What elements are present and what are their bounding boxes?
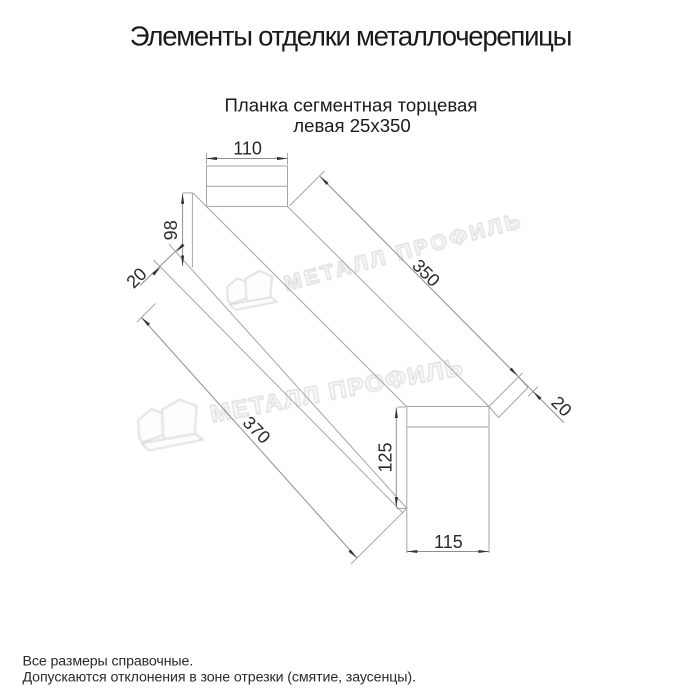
svg-text:110: 110	[233, 139, 262, 159]
svg-text:Планка сегментная торцевая: Планка сегментная торцевая	[225, 95, 478, 116]
svg-text:98: 98	[161, 220, 181, 240]
svg-text:Допускаются отклонения в зоне: Допускаются отклонения в зоне отрезки (с…	[23, 669, 416, 685]
svg-text:левая 25х350: левая 25х350	[293, 115, 410, 136]
svg-text:125: 125	[376, 442, 396, 472]
svg-text:115: 115	[434, 532, 463, 552]
svg-text:Все размеры справочные.: Все размеры справочные.	[23, 653, 194, 669]
svg-text:Элементы отделки металлочерепи: Элементы отделки металлочерепицы	[130, 21, 571, 52]
